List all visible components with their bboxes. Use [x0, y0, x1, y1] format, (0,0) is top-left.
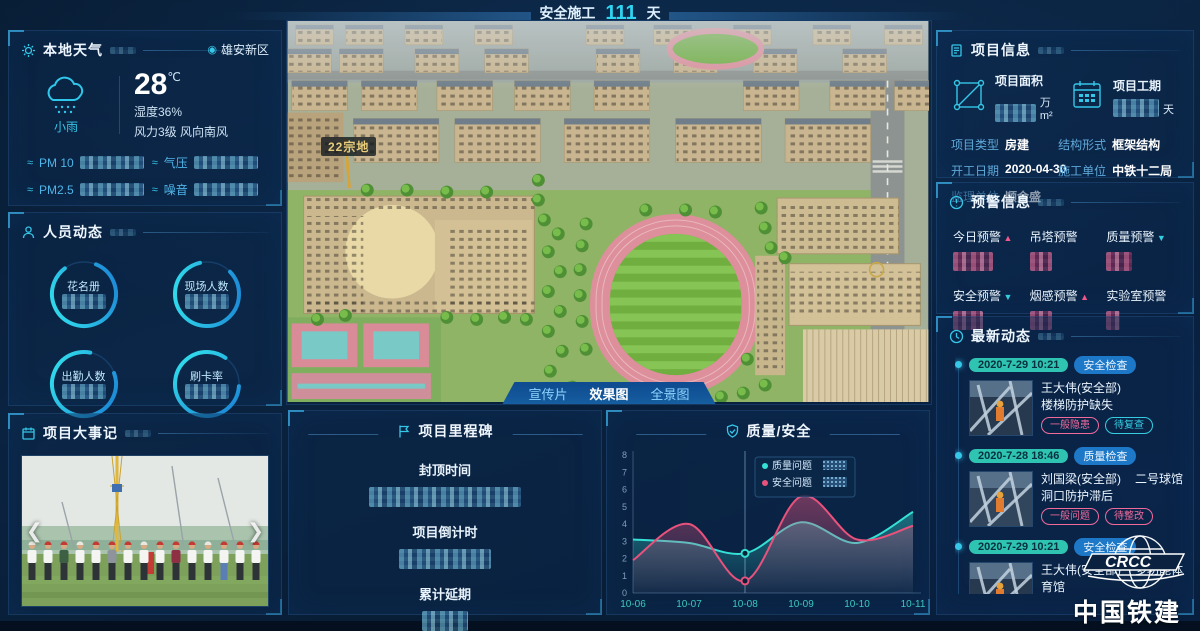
weather-metric-value-blurred [80, 183, 144, 196]
project-field: 结构形式框架结构 [1058, 136, 1179, 153]
weather-condition: 小雨 [27, 76, 105, 135]
warning-label: 质量预警 [1106, 230, 1154, 244]
update-date-badge: 2020-7-28 18:46 [969, 449, 1068, 463]
update-tag: 待整改 [1105, 508, 1153, 525]
personnel-ring-3: 刷卡率 [169, 346, 245, 422]
wave-icon: ≈ [27, 184, 33, 196]
milestone-label: 封顶时间 [289, 460, 601, 479]
location-badge: ◉ 雄安新区 [207, 41, 269, 58]
warning-value-blurred [953, 252, 993, 271]
weather-panel: 本地天气 ◉ 雄安新区 小雨 28℃ 湿度36% 风力3级 风向南风 ≈PM 1… [8, 30, 282, 206]
svg-text:10-07: 10-07 [676, 599, 702, 610]
view-button-1[interactable]: 效果图 [589, 384, 628, 403]
person-icon [21, 225, 36, 240]
svg-text:0: 0 [622, 588, 627, 598]
update-entry-1[interactable]: 2020-7-28 18:46质量检查刘国梁(安全部)二号球馆洞口防护滞后一般问… [955, 447, 1185, 527]
document-icon [949, 43, 964, 58]
field-label: 结构形式 [1058, 136, 1106, 153]
warnings-panel: 预警信息 今日预警 ▲吊塔预警质量预警 ▼安全预警 ▼烟感预警 ▲实验室预警 [936, 182, 1194, 314]
quality-safety-panel: 质量/安全 01234567810-0610-0710-0810-0910-10… [606, 410, 930, 615]
update-location: 二号球馆 [1135, 472, 1183, 486]
milestone-items: 封顶时间项目倒计时累计延期 [289, 460, 601, 631]
weather-metric: ≈气压 [152, 154, 265, 171]
project-stat: 项目工期天 [1069, 72, 1179, 122]
svg-text:10-11: 10-11 [901, 599, 925, 610]
update-photo [969, 380, 1033, 436]
timeline-dot [955, 543, 962, 550]
events-panel: 项目大事记 ❮ ❯ [8, 413, 282, 615]
clock-icon [949, 329, 964, 344]
milestone-item: 累计延期 [289, 584, 601, 631]
ring-value-blurred [62, 294, 106, 309]
svg-text:10-08: 10-08 [732, 599, 758, 610]
carousel-prev-button[interactable]: ❮ [26, 519, 43, 544]
milestone-value-blurred [399, 549, 491, 569]
update-person: 王大伟(安全部) [1041, 381, 1121, 395]
weather-metric-value-blurred [194, 183, 258, 196]
svg-text:4: 4 [622, 519, 627, 529]
warning-item: 吊塔预警 [1030, 228, 1101, 271]
ring-label: 刷卡率 [169, 368, 245, 384]
milestone-title: 项目里程碑 [419, 421, 494, 441]
plot-22-marker[interactable]: 22宗地 [321, 137, 376, 156]
project-info-title: 项目信息 [971, 40, 1031, 60]
ring-label: 现场人数 [169, 278, 245, 294]
weather-metric-label: 气压 [164, 154, 188, 171]
personnel-panel: 人员动态 花名册现场人数出勤人数刷卡率 [8, 212, 282, 406]
temperature-value: 28 [134, 68, 167, 101]
field-value: 中铁十二局 [1112, 162, 1172, 179]
svg-text:10-06: 10-06 [620, 599, 646, 610]
project-field: 项目类型房建 [951, 136, 1058, 153]
warnings-title: 预警信息 [971, 192, 1031, 212]
alert-icon [949, 195, 964, 210]
project-stat-unit: 天 [1163, 101, 1174, 117]
calendar-icon [1069, 77, 1105, 118]
trend-up-icon: ▲ [1001, 233, 1012, 243]
warning-label: 今日预警 [953, 230, 1001, 244]
wave-icon: ≈ [152, 184, 158, 196]
area-icon [951, 77, 987, 118]
milestone-label: 项目倒计时 [289, 522, 601, 541]
svg-text:1: 1 [622, 571, 627, 581]
milestone-item: 封顶时间 [289, 460, 601, 507]
update-photo [969, 562, 1033, 594]
view-button-2[interactable]: 全景图 [651, 384, 690, 403]
wind: 风力3级 风向南风 [134, 123, 228, 140]
svg-text:6: 6 [622, 485, 627, 495]
rain-cloud-icon [40, 76, 92, 116]
ring-value-blurred [62, 384, 106, 399]
crcc-name: 中国铁建 [1058, 593, 1196, 629]
update-tag: 待复查 [1105, 417, 1153, 434]
svg-text:安全问题: 安全问题 [772, 476, 812, 489]
chart-tooltip: 质量问题安全问题 [755, 457, 855, 497]
carousel-next-button[interactable]: ❯ [247, 519, 264, 544]
field-label: 开工日期 [951, 162, 999, 179]
humidity: 湿度36% [134, 103, 228, 120]
update-photo [969, 471, 1033, 527]
trend-down-icon: ▼ [1001, 292, 1012, 302]
site-3d-view: 22宗地 宣传片效果图全景图 [286, 20, 932, 405]
project-stat-label: 项目面积 [995, 72, 1061, 89]
project-stat-value-blurred [1113, 99, 1159, 117]
svg-text:质量问题: 质量问题 [772, 459, 812, 472]
warning-label: 吊塔预警 [1030, 230, 1078, 244]
project-stat-value-blurred [995, 104, 1036, 122]
warning-item: 今日预警 ▲ [953, 228, 1024, 271]
update-type-badge: 质量检查 [1074, 447, 1136, 465]
site-render [287, 21, 929, 402]
safety-days-value: 111 [605, 2, 636, 25]
calendar-note-icon [21, 426, 36, 441]
warning-item: 质量预警 ▼ [1106, 228, 1177, 271]
personnel-ring-0: 花名册 [46, 256, 122, 332]
personnel-title: 人员动态 [43, 222, 103, 242]
svg-text:10-09: 10-09 [788, 599, 814, 610]
personnel-ring-2: 出勤人数 [46, 346, 122, 422]
crcc-globe-icon: CRCC [1058, 532, 1196, 594]
warning-value-blurred [1030, 252, 1052, 271]
safety-days-label: 安全施工 [539, 3, 595, 23]
header-deco-right [669, 12, 969, 20]
project-stat-label: 项目工期 [1113, 77, 1174, 94]
svg-text:3: 3 [622, 536, 627, 546]
svg-text:CRCC: CRCC [1105, 554, 1152, 571]
field-label: 项目类型 [951, 136, 999, 153]
personnel-ring-1: 现场人数 [169, 256, 245, 332]
milestone-value-blurred [422, 611, 468, 631]
milestone-panel: 项目里程碑 封顶时间项目倒计时累计延期 [288, 410, 602, 615]
weather-metric-label: 噪音 [164, 181, 188, 198]
svg-text:2: 2 [622, 554, 627, 564]
project-info-panel: 项目信息 项目面积万m²项目工期天 项目类型房建结构形式框架结构开工日期2020… [936, 30, 1194, 178]
wave-icon: ≈ [27, 157, 33, 169]
weather-metric: ≈PM 10 [27, 154, 144, 171]
warning-label: 实验室预警 [1106, 289, 1166, 303]
svg-text:7: 7 [622, 467, 627, 477]
milestone-item: 项目倒计时 [289, 522, 601, 569]
weather-metric-value-blurred [80, 156, 144, 169]
events-photo: ❮ ❯ [21, 455, 269, 607]
update-issue: 洞口防护滞后 [1041, 488, 1183, 505]
group-photo [22, 456, 269, 606]
warning-value-blurred [1106, 252, 1132, 271]
timeline-dot [955, 361, 962, 368]
project-stats: 项目面积万m²项目工期天 [937, 64, 1193, 124]
milestone-label: 累计延期 [289, 584, 601, 603]
ring-label: 花名册 [46, 278, 122, 294]
quality-safety-chart: 01234567810-0610-0710-0810-0910-1010-11质… [607, 445, 925, 613]
update-date-badge: 2020-7-29 10:21 [969, 540, 1068, 554]
milestone-value-blurred [369, 487, 521, 507]
ring-value-blurred [185, 294, 229, 309]
view-button-0[interactable]: 宣传片 [528, 384, 567, 403]
update-entry-0[interactable]: 2020-7-29 10:21安全检查王大伟(安全部)楼梯防护缺失一般隐患待复查 [955, 356, 1185, 436]
weather-title: 本地天气 [43, 40, 103, 60]
project-field: 开工日期2020-04-30 [951, 162, 1058, 179]
update-person: 刘国梁(安全部) [1041, 472, 1121, 486]
field-label: 施工单位 [1058, 162, 1106, 179]
trend-up-icon: ▲ [1078, 292, 1089, 302]
weather-metrics: ≈PM 10≈气压≈PM2.5≈噪音 [9, 142, 281, 198]
location-pin-icon: ◉ [207, 43, 217, 56]
project-stat: 项目面积万m² [951, 72, 1061, 122]
update-tag: 一般问题 [1041, 508, 1099, 525]
events-title: 项目大事记 [43, 423, 118, 443]
project-stat-unit: 万m² [1040, 94, 1061, 122]
crcc-logo: CRCC 中国铁建 [1058, 532, 1196, 629]
updates-title: 最新动态 [971, 326, 1031, 346]
trend-down-icon: ▼ [1154, 233, 1165, 243]
weather-metric-value-blurred [194, 156, 258, 169]
warning-label: 烟感预警 [1030, 289, 1078, 303]
field-value: 框架结构 [1112, 136, 1160, 153]
flag-icon [397, 424, 412, 439]
warnings-grid: 今日预警 ▲吊塔预警质量预警 ▼安全预警 ▼烟感预警 ▲实验室预警 [937, 216, 1193, 330]
update-issue: 楼梯防护缺失 [1041, 397, 1153, 414]
sun-gear-icon [21, 43, 36, 58]
personnel-rings: 花名册现场人数出勤人数刷卡率 [9, 246, 281, 432]
shield-check-icon [725, 424, 740, 439]
ring-label: 出勤人数 [46, 368, 122, 384]
field-value: 房建 [1005, 136, 1029, 153]
ring-value-blurred [185, 384, 229, 399]
svg-text:8: 8 [622, 450, 627, 460]
weather-metric: ≈噪音 [152, 181, 265, 198]
timeline-dot [955, 452, 962, 459]
weather-metric-label: PM 10 [39, 156, 74, 170]
top-header: 安全施工 111 天 [0, 0, 1200, 26]
quality-safety-title: 质量/安全 [747, 421, 812, 441]
svg-text:10-10: 10-10 [844, 599, 870, 610]
wave-icon: ≈ [152, 157, 158, 169]
header-deco-left [231, 12, 531, 20]
view-mode-switch: 宣传片效果图全景图 [502, 382, 715, 404]
safety-days-unit: 天 [647, 3, 661, 23]
warning-label: 安全预警 [953, 289, 1001, 303]
update-type-badge: 安全检查 [1074, 356, 1136, 374]
weather-metric-label: PM2.5 [39, 183, 74, 197]
update-date-badge: 2020-7-29 10:21 [969, 358, 1068, 372]
project-field: 施工单位中铁十二局 [1058, 162, 1179, 179]
svg-text:5: 5 [622, 502, 627, 512]
update-tag: 一般隐患 [1041, 417, 1099, 434]
weather-metric: ≈PM2.5 [27, 181, 144, 198]
